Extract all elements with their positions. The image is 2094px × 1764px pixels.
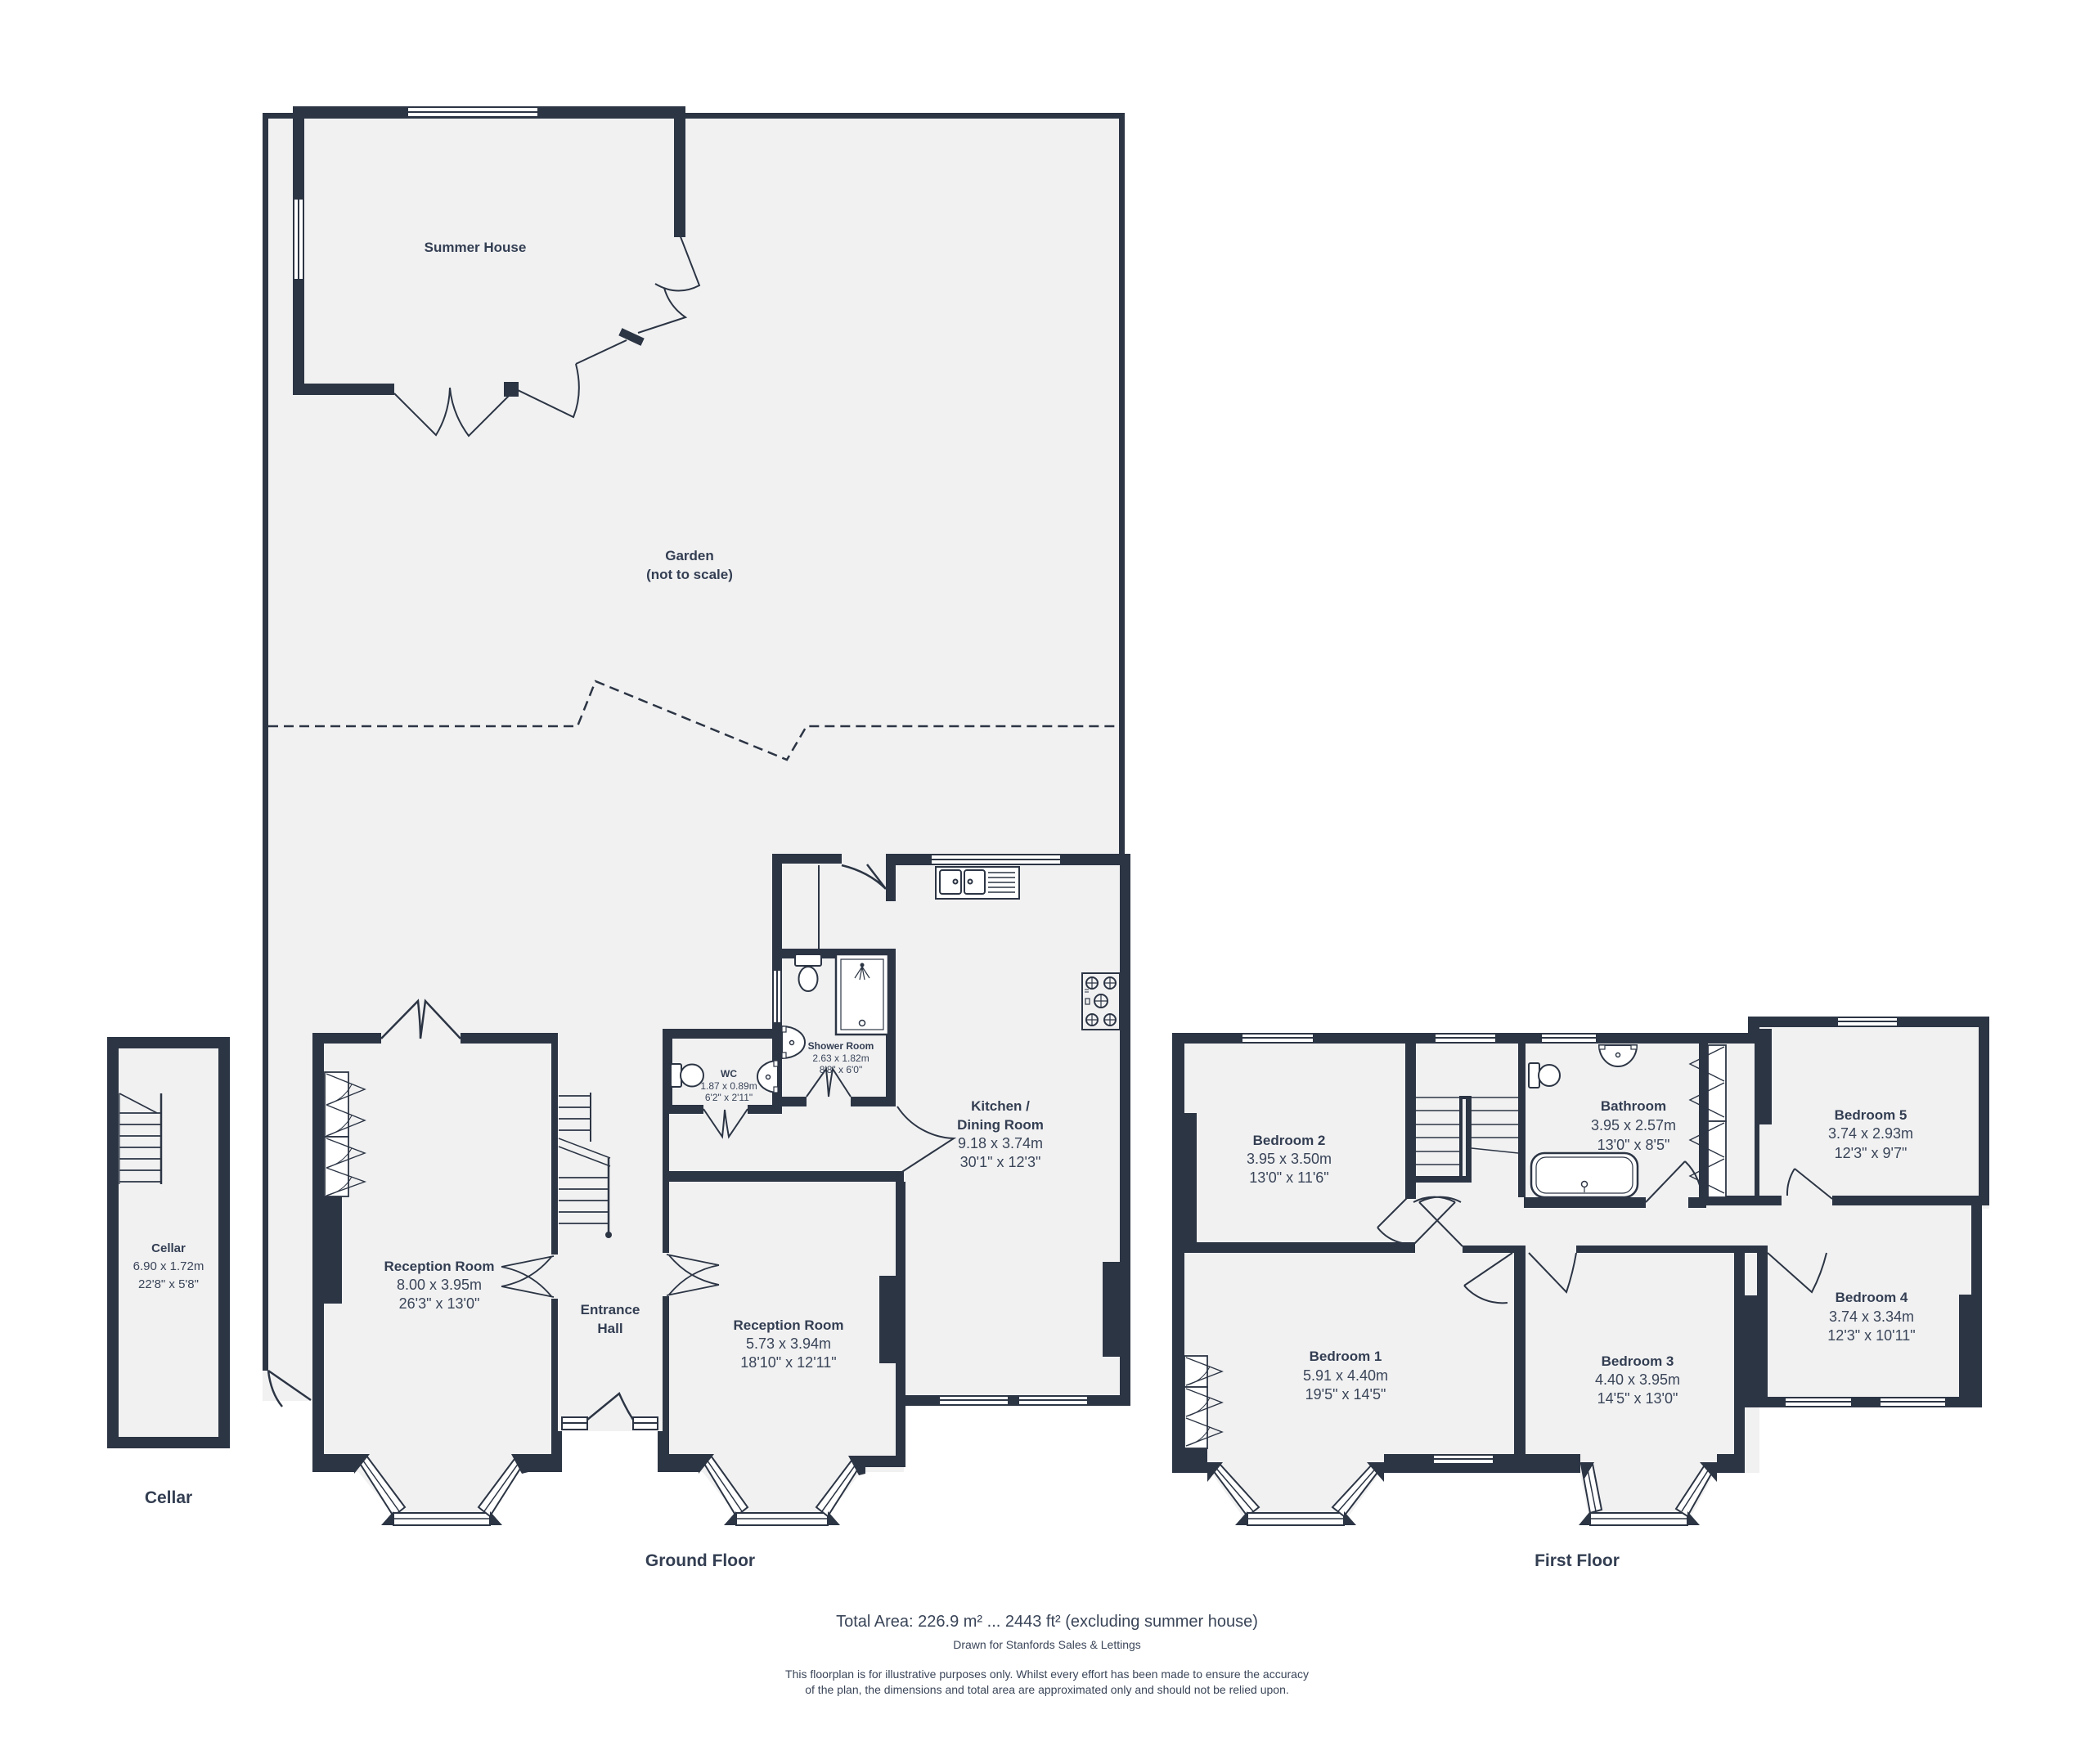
- svg-text:Bedroom 4: Bedroom 4: [1836, 1290, 1908, 1305]
- svg-text:Reception Room: Reception Room: [733, 1317, 843, 1333]
- svg-text:8.00 x 3.95m: 8.00 x 3.95m: [397, 1277, 482, 1293]
- svg-text:(not to scale): (not to scale): [646, 567, 733, 582]
- svg-text:Dining Room: Dining Room: [957, 1117, 1044, 1133]
- svg-text:2.63 x 1.82m: 2.63 x 1.82m: [812, 1053, 869, 1064]
- svg-text:30'1" x 12'3": 30'1" x 12'3": [960, 1154, 1041, 1170]
- svg-text:14'5" x 13'0": 14'5" x 13'0": [1597, 1390, 1678, 1407]
- svg-text:3.95 x 3.50m: 3.95 x 3.50m: [1247, 1151, 1332, 1167]
- svg-text:18'10" x 12'11": 18'10" x 12'11": [740, 1354, 836, 1371]
- svg-text:Kitchen /: Kitchen /: [971, 1098, 1030, 1114]
- svg-text:9.18 x 3.74m: 9.18 x 3.74m: [958, 1135, 1043, 1151]
- svg-text:Summer House: Summer House: [425, 240, 527, 255]
- svg-text:19'5" x 14'5": 19'5" x 14'5": [1305, 1386, 1386, 1403]
- svg-text:4.40 x 3.95m: 4.40 x 3.95m: [1595, 1371, 1680, 1388]
- svg-text:6'2" x 2'11": 6'2" x 2'11": [705, 1092, 753, 1103]
- svg-text:Drawn for Stanfords Sales & Le: Drawn for Stanfords Sales & Lettings: [953, 1638, 1141, 1651]
- svg-text:1.87 x 0.89m: 1.87 x 0.89m: [700, 1080, 757, 1092]
- svg-text:13'0" x 8'5": 13'0" x 8'5": [1597, 1137, 1670, 1153]
- svg-text:3.74 x 2.93m: 3.74 x 2.93m: [1828, 1125, 1913, 1142]
- svg-text:Garden: Garden: [665, 548, 714, 563]
- svg-text:Reception Room: Reception Room: [384, 1259, 494, 1274]
- svg-text:Entrance: Entrance: [581, 1302, 640, 1317]
- svg-text:Bathroom: Bathroom: [1601, 1098, 1666, 1114]
- svg-text:26'3" x 13'0": 26'3" x 13'0": [399, 1295, 480, 1312]
- svg-text:Bedroom 3: Bedroom 3: [1602, 1353, 1674, 1369]
- svg-text:Shower Room: Shower Room: [808, 1040, 874, 1052]
- svg-text:First Floor: First Floor: [1535, 1551, 1620, 1570]
- svg-text:Cellar: Cellar: [151, 1241, 186, 1255]
- svg-text:22'8" x 5'8": 22'8" x 5'8": [138, 1277, 199, 1291]
- svg-text:Cellar: Cellar: [145, 1488, 192, 1507]
- svg-text:of the plan, the dimensions an: of the plan, the dimensions and total ar…: [805, 1683, 1289, 1696]
- svg-text:WC: WC: [721, 1068, 737, 1079]
- svg-text:5.73 x 3.94m: 5.73 x 3.94m: [746, 1335, 831, 1352]
- svg-text:Total Area: 226.9 m² ... 2443: Total Area: 226.9 m² ... 2443 ft² (exclu…: [836, 1613, 1258, 1631]
- svg-text:13'0" x 11'6": 13'0" x 11'6": [1249, 1169, 1328, 1186]
- svg-text:Ground Floor: Ground Floor: [645, 1551, 755, 1570]
- svg-text:6.90 x 1.72m: 6.90 x 1.72m: [133, 1259, 204, 1273]
- svg-text:Hall: Hall: [597, 1321, 622, 1336]
- svg-text:3.95 x 2.57m: 3.95 x 2.57m: [1591, 1117, 1676, 1133]
- svg-text:8'8" x 6'0": 8'8" x 6'0": [820, 1064, 862, 1075]
- svg-text:12'3" x 9'7": 12'3" x 9'7": [1835, 1145, 1908, 1161]
- svg-text:This floorplan is for illustra: This floorplan is for illustrative purpo…: [785, 1667, 1309, 1681]
- svg-text:Bedroom 5: Bedroom 5: [1835, 1107, 1908, 1123]
- svg-text:12'3" x 10'11": 12'3" x 10'11": [1827, 1327, 1915, 1344]
- svg-text:3.74 x 3.34m: 3.74 x 3.34m: [1829, 1308, 1914, 1325]
- svg-text:Bedroom 1: Bedroom 1: [1310, 1349, 1382, 1364]
- svg-text:Bedroom 2: Bedroom 2: [1253, 1133, 1326, 1148]
- svg-text:5.91 x 4.40m: 5.91 x 4.40m: [1303, 1367, 1388, 1384]
